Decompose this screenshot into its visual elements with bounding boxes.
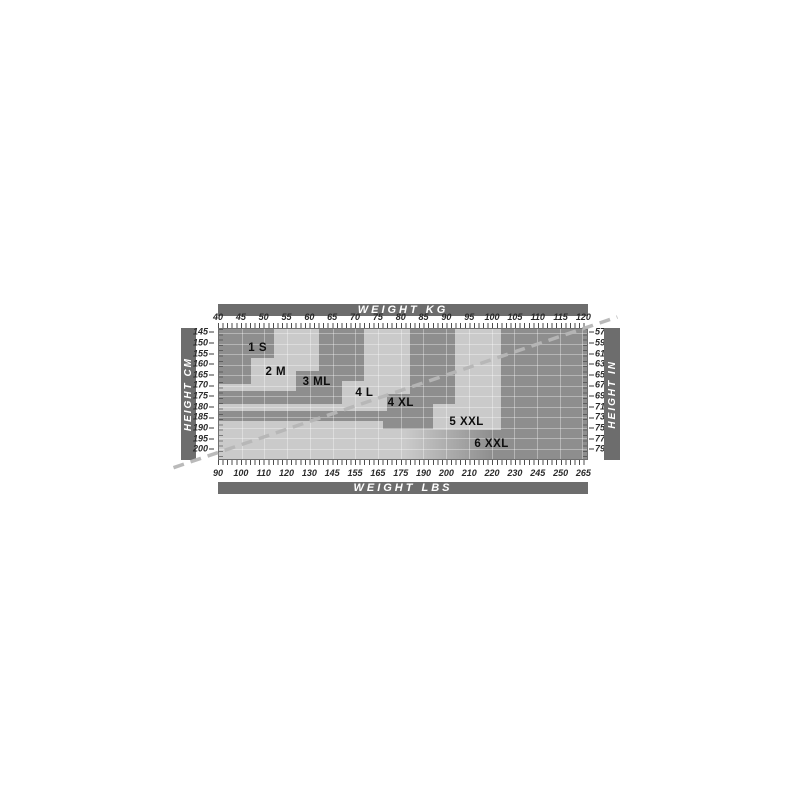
grid-line-kg-80	[401, 329, 402, 459]
kg-tick-80: 80	[396, 312, 406, 322]
height-in-axis-title: HEIGHT IN	[607, 360, 618, 429]
size-region-6xxl-fade	[219, 430, 501, 459]
size-label-3ml: 3 ML	[303, 376, 331, 388]
in-tick-77: 77	[589, 434, 605, 443]
lbs-tick-265: 265	[576, 468, 591, 478]
size-region-4l	[342, 381, 410, 394]
bottom-minor-ticks	[218, 460, 588, 465]
cm-tick-165: 165	[193, 370, 214, 379]
size-label-1s: 1 S	[248, 342, 267, 354]
lbs-tick-230: 230	[507, 468, 522, 478]
in-tick-65: 65	[589, 370, 605, 379]
cm-tick-175: 175	[193, 392, 214, 401]
grid-line-kg-110	[537, 329, 538, 459]
lbs-tick-220: 220	[485, 468, 500, 478]
lbs-tick-100: 100	[233, 468, 248, 478]
lbs-tick-190: 190	[416, 468, 431, 478]
grid-line-cm-185	[219, 417, 587, 418]
lbs-tick-90: 90	[213, 468, 223, 478]
grid-line-kg-60	[310, 329, 311, 459]
lbs-tick-145: 145	[325, 468, 340, 478]
in-tick-73: 73	[589, 413, 605, 422]
chart-plot-area: 1 S2 M3 ML4 L4 XL5 XXL6 XXL	[218, 328, 588, 460]
in-tick-57: 57	[589, 328, 605, 337]
lbs-tick-165: 165	[370, 468, 385, 478]
kg-tick-95: 95	[464, 312, 474, 322]
size-region-4xl	[410, 329, 455, 394]
kg-tick-110: 110	[531, 312, 545, 322]
lbs-tick-155: 155	[348, 468, 363, 478]
kg-tick-50: 50	[259, 312, 269, 322]
cm-tick-185: 185	[193, 413, 214, 422]
kg-tick-60: 60	[304, 312, 314, 322]
size-region-4l	[364, 329, 409, 381]
cm-tick-195: 195	[193, 434, 214, 443]
in-tick-63: 63	[589, 360, 605, 369]
in-tick-61: 61	[589, 349, 605, 358]
in-tick-75: 75	[589, 424, 605, 433]
grid-line-cm-145	[219, 333, 587, 334]
in-tick-79: 79	[589, 445, 605, 454]
kg-tick-90: 90	[441, 312, 451, 322]
size-region-5xxl	[455, 329, 500, 404]
lbs-tick-175: 175	[393, 468, 408, 478]
page-background: WEIGHT KG 404550556065707580859095100105…	[0, 0, 800, 800]
in-tick-59: 59	[589, 338, 605, 347]
kg-tick-75: 75	[373, 312, 383, 322]
grid-line-kg-115	[560, 329, 561, 459]
grid-line-kg-45	[242, 329, 243, 459]
left-minor-ticks	[219, 329, 223, 459]
lbs-tick-210: 210	[462, 468, 477, 478]
grid-line-cm-170	[219, 386, 587, 387]
lbs-tick-245: 245	[530, 468, 545, 478]
kg-tick-65: 65	[327, 312, 337, 322]
size-chart: WEIGHT KG 404550556065707580859095100105…	[170, 288, 630, 503]
grid-line-kg-55	[287, 329, 288, 459]
kg-tick-120: 120	[576, 312, 591, 322]
lbs-tick-110: 110	[256, 468, 270, 478]
grid-line-kg-75	[378, 329, 379, 459]
kg-tick-105: 105	[507, 312, 522, 322]
right-minor-ticks	[583, 329, 587, 459]
grid-line-kg-65	[333, 329, 334, 459]
kg-tick-70: 70	[350, 312, 360, 322]
weight-lbs-axis-title: WEIGHT LBS	[353, 482, 452, 494]
weight-lbs-axis-bar: WEIGHT LBS	[218, 482, 588, 494]
lbs-tick-130: 130	[302, 468, 317, 478]
cm-tick-155: 155	[193, 349, 214, 358]
kg-tick-100: 100	[485, 312, 500, 322]
lbs-tick-200: 200	[439, 468, 454, 478]
size-region-1s	[219, 358, 251, 383]
size-label-6xxl: 6 XXL	[474, 438, 508, 450]
weight-kg-tick-labels: 404550556065707580859095100105110115120	[218, 312, 588, 323]
grid-line-cm-195	[219, 438, 587, 439]
cm-tick-145: 145	[193, 328, 214, 337]
lbs-tick-250: 250	[553, 468, 568, 478]
grid-line-cm-155	[219, 354, 587, 355]
grid-line-cm-200	[219, 449, 587, 450]
grid-line-kg-95	[469, 329, 470, 459]
cm-tick-170: 170	[193, 381, 214, 390]
in-tick-67: 67	[589, 381, 605, 390]
weight-lbs-tick-labels: 9010011012013014515516517519020021022023…	[218, 468, 588, 479]
size-region-2m	[219, 384, 296, 391]
cm-tick-160: 160	[193, 360, 214, 369]
in-tick-71: 71	[589, 402, 605, 411]
size-label-2m: 2 M	[265, 366, 286, 378]
size-label-4xl: 4 XL	[388, 397, 414, 409]
grid-line-kg-105	[514, 329, 515, 459]
cm-tick-200: 200	[193, 445, 214, 454]
kg-tick-45: 45	[236, 312, 246, 322]
cm-tick-180: 180	[193, 402, 214, 411]
size-label-5xxl: 5 XXL	[449, 416, 483, 428]
in-tick-69: 69	[589, 392, 605, 401]
cm-tick-190: 190	[193, 424, 214, 433]
size-region-3ml	[219, 391, 342, 405]
lbs-tick-120: 120	[279, 468, 294, 478]
size-label-4l: 4 L	[355, 387, 373, 399]
kg-tick-55: 55	[282, 312, 292, 322]
grid-line-cm-190	[219, 428, 587, 429]
grid-line-kg-85	[423, 329, 424, 459]
kg-tick-115: 115	[553, 312, 567, 322]
height-cm-tick-labels: 145150155160165170175180185190195200	[192, 328, 214, 460]
height-in-axis-bar: HEIGHT IN	[604, 328, 620, 460]
cm-tick-150: 150	[193, 338, 214, 347]
grid-line-kg-90	[446, 329, 447, 459]
kg-tick-40: 40	[213, 312, 223, 322]
kg-tick-85: 85	[419, 312, 429, 322]
grid-line-cm-150	[219, 344, 587, 345]
